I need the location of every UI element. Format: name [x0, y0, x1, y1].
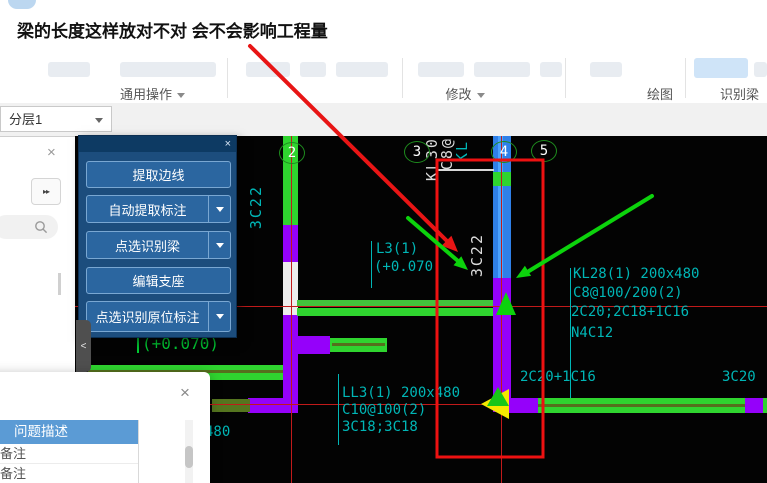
- axis-bubble-3: 3: [404, 141, 430, 163]
- beam-upper-2: [297, 308, 494, 316]
- auto-extract-annotation-button[interactable]: 自动提取标注: [86, 195, 231, 223]
- axis-line-2: [291, 136, 292, 483]
- beam-stub-dark: [212, 399, 250, 412]
- close-icon[interactable]: ×: [225, 137, 231, 151]
- green-up-arrowhead: [496, 292, 516, 315]
- expand-panel-button[interactable]: ▸▸: [31, 178, 61, 205]
- rebar-label-right: 3C20: [722, 369, 756, 385]
- beam-right-centerline: [538, 404, 745, 407]
- chevron-down-icon: [177, 93, 185, 102]
- beam-right-green-edge: [763, 398, 767, 413]
- layer-bar: 分层1: [0, 103, 767, 137]
- beam-right-purple-end2: [745, 398, 763, 413]
- app-window: 梁的长度这样放对不对 会不会影响工程量 通用操作 修改 绘图 识别梁 分层1 ×…: [0, 0, 767, 483]
- beam-right-purple-end: [505, 398, 538, 413]
- question-dialog: × 问题描述 备注 备注: [0, 372, 210, 483]
- beam-middle-centerline: [332, 343, 385, 346]
- column-4-green-segment: [493, 172, 511, 186]
- dropdown-arrow[interactable]: [208, 196, 230, 222]
- support-marker-green-triangle: [487, 387, 509, 406]
- extract-edge-button[interactable]: 提取边线: [86, 161, 231, 188]
- beam-label-kl28-3: 2C20;2C18+1C16: [571, 304, 689, 320]
- axis-bubble-2: 2: [279, 142, 305, 164]
- beam-arm-purple: [298, 336, 330, 354]
- chevron-down-icon: [216, 243, 224, 252]
- list-item-problem-description[interactable]: 问题描述: [0, 420, 138, 444]
- toolbar-icon-blurred[interactable]: [246, 62, 290, 77]
- double-arrow-icon: ▸▸: [43, 187, 49, 196]
- dropdown-arrow[interactable]: [208, 232, 230, 258]
- dialog-scrollbar[interactable]: [185, 420, 193, 483]
- collapse-handle[interactable]: <: [76, 320, 91, 372]
- toolbar-divider: [685, 58, 686, 98]
- list-item-remark[interactable]: 备注: [0, 464, 138, 483]
- question-title: 梁的长度这样放对不对 会不会影响工程量: [17, 17, 328, 42]
- toolbar-icon-blurred[interactable]: [540, 62, 562, 77]
- leader-line: [371, 241, 372, 288]
- beam-label-kl28-1: KL28(1) 200x480: [573, 266, 699, 282]
- search-icon: [34, 220, 48, 234]
- toolbar-icon-blurred[interactable]: [48, 62, 90, 77]
- click-identify-beam-button[interactable]: 点选识别梁: [86, 231, 231, 259]
- toolbar-icon-blurred[interactable]: [754, 62, 767, 77]
- click-identify-in-situ-annotation-button[interactable]: 点选识别原位标注: [86, 301, 231, 332]
- toolbar-group-modify[interactable]: 修改: [430, 84, 500, 103]
- rebar-label-top: 2C20+1C16: [520, 369, 596, 385]
- close-icon[interactable]: ×: [47, 144, 56, 161]
- edit-support-button[interactable]: 编辑支座: [86, 267, 231, 294]
- toolbar-group-identify-beam[interactable]: 识别梁: [712, 84, 767, 103]
- toolbar-divider: [402, 58, 403, 98]
- toolbar-group-common-ops[interactable]: 通用操作: [100, 84, 205, 103]
- dialog-list: 问题描述 备注 备注: [0, 420, 139, 483]
- chevron-down-icon: [95, 118, 103, 127]
- list-item-remark[interactable]: 备注: [0, 444, 138, 464]
- chevron-down-icon: [477, 93, 485, 102]
- leader-line: [338, 374, 339, 445]
- beam-label-ll3-2: C10@100(2): [342, 402, 426, 418]
- dropdown-arrow[interactable]: [208, 302, 230, 331]
- chevron-left-icon: <: [81, 341, 87, 352]
- chevron-down-icon: [216, 314, 224, 323]
- toolbar-icon-highlighted[interactable]: [694, 58, 748, 78]
- toolbar-icon-blurred[interactable]: [474, 62, 530, 77]
- toolbar-icon-blurred[interactable]: [120, 62, 216, 77]
- beam-label-kl28-2: C8@100/200(2): [573, 285, 683, 301]
- toolbar-icon-blurred[interactable]: [336, 62, 388, 77]
- tool-panel-titlebar[interactable]: ×: [79, 136, 236, 152]
- toolbar-icon-blurred[interactable]: [300, 62, 326, 77]
- beam-label-ll3-1: LL3(1) 200x480: [342, 385, 460, 401]
- beam-label-kl28-4: N4C12: [571, 325, 613, 341]
- scrollbar-thumb[interactable]: [185, 446, 193, 468]
- close-icon[interactable]: ×: [176, 384, 194, 402]
- axis-bubble-5: 5: [531, 140, 557, 162]
- toolbar-divider: [227, 58, 228, 98]
- search-input[interactable]: [0, 215, 58, 239]
- identify-beam-tool-panel: × 提取边线 自动提取标注 点选识别梁 编辑支座 点选识别原位标注: [78, 135, 237, 338]
- chevron-down-icon: [216, 207, 224, 216]
- beam-label-l3: L3(1): [376, 241, 418, 257]
- layer-select[interactable]: 分层1: [0, 106, 112, 132]
- toolbar-group-draw[interactable]: 绘图: [636, 84, 684, 103]
- axis-bubble-4: 4: [491, 141, 517, 163]
- toolbar-divider: [565, 58, 566, 98]
- ribbon-toolbar: 通用操作 修改 绘图 识别梁: [0, 55, 767, 104]
- sidebar-scrollbar[interactable]: [58, 273, 61, 295]
- toolbar-icon-blurred[interactable]: [418, 62, 464, 77]
- beam-elevation-l3: (+0.070): [374, 259, 441, 275]
- beam-label-ll3-3: 3C18;3C18: [342, 419, 418, 435]
- app-logo-icon: [8, 0, 36, 9]
- toolbar-icon-blurred[interactable]: [590, 62, 622, 77]
